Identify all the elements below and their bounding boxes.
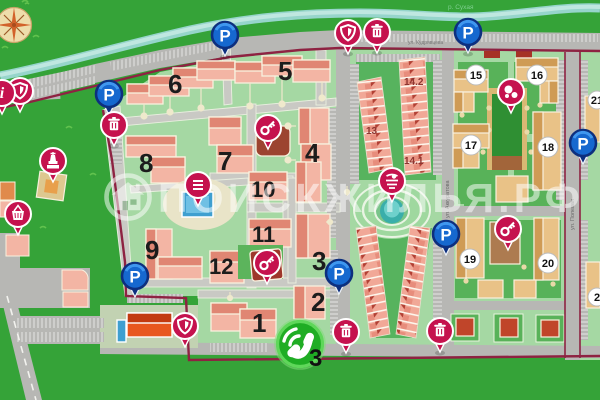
svg-text:18: 18 [542,142,554,154]
svg-text:15: 15 [470,70,482,82]
svg-text:3: 3 [312,246,326,276]
svg-text:13: 13 [366,126,378,137]
svg-text:р. Сухая: р. Сухая [448,4,474,11]
svg-text:ул. Кудрявцева: ул. Кудрявцева [408,40,444,46]
svg-text:6: 6 [168,69,182,99]
svg-text:7: 7 [218,146,232,176]
svg-text:ПОИСКЖИЛЬЯ.РФ: ПОИСКЖИЛЬЯ.РФ [158,175,584,221]
svg-text:16: 16 [531,70,543,82]
svg-text:1: 1 [252,308,266,338]
svg-text:5: 5 [278,56,292,86]
svg-text:2: 2 [594,292,600,304]
svg-text:19: 19 [464,254,476,266]
svg-text:14.1: 14.1 [404,156,424,167]
svg-text:11: 11 [252,222,275,247]
svg-text:2: 2 [311,287,325,317]
svg-text:4: 4 [305,138,320,168]
svg-text:12: 12 [209,254,233,279]
svg-text:14.2: 14.2 [404,77,424,88]
svg-text:17: 17 [465,140,477,152]
svg-text:21: 21 [591,95,600,107]
svg-text:8: 8 [139,148,153,178]
svg-text:i: i [0,85,5,102]
svg-text:9: 9 [145,235,159,265]
svg-text:3: 3 [309,345,322,372]
svg-text:20: 20 [542,258,554,270]
